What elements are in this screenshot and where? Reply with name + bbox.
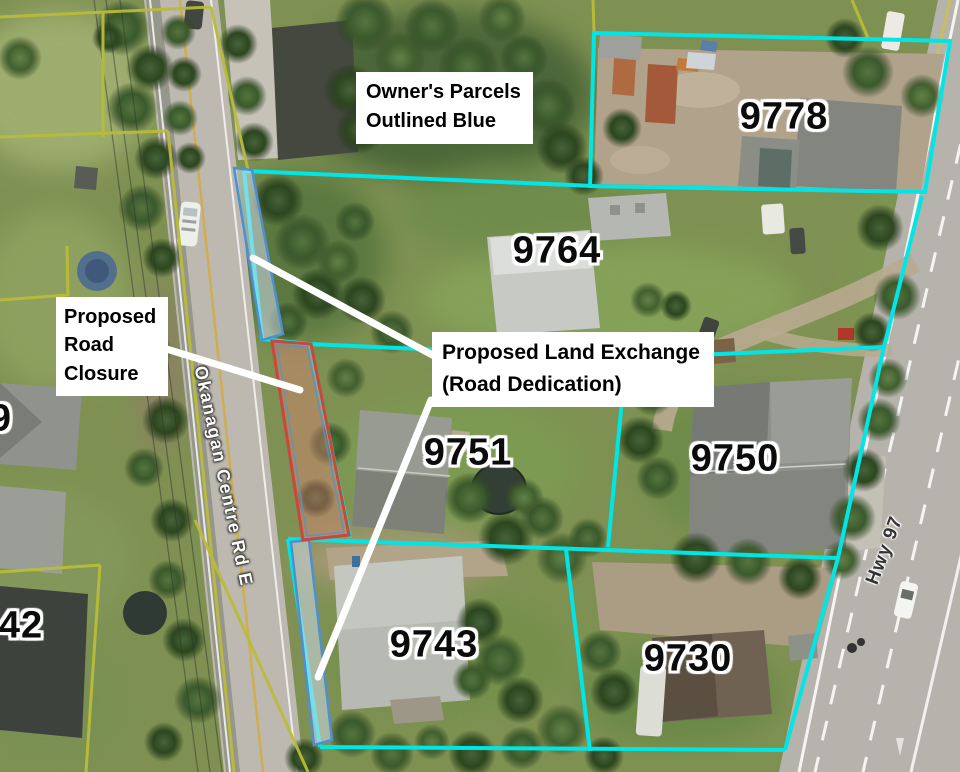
note-land-exchange: Proposed Land Exchange (Road Dedication) bbox=[432, 332, 714, 407]
parcel-label-9730: 9730 bbox=[644, 638, 733, 681]
house-mid-left bbox=[0, 486, 66, 574]
parcel-label-9751: 9751 bbox=[424, 432, 513, 475]
note-closure-line3: Closure bbox=[64, 360, 156, 388]
parcel-label-9764: 9764 bbox=[513, 230, 602, 273]
parcel-label-9750: 9750 bbox=[691, 438, 780, 481]
note-road-closure: Proposed Road Closure bbox=[56, 297, 168, 396]
note-closure-line1: Proposed bbox=[64, 303, 156, 331]
note-exchange-line2: (Road Dedication) bbox=[442, 369, 700, 401]
note-exchange-line1: Proposed Land Exchange bbox=[442, 337, 700, 369]
note-owners-line2: Outlined Blue bbox=[366, 107, 521, 136]
parcel-label-9: 9 bbox=[0, 398, 12, 441]
parcel-label-9778: 9778 bbox=[740, 96, 829, 139]
shed-left bbox=[74, 166, 98, 190]
aerial-map: 9778 9764 9751 9750 9743 9730 42 9 Okana… bbox=[0, 0, 960, 772]
note-owners-line1: Owner's Parcels bbox=[366, 78, 521, 107]
parcel-label-9743: 9743 bbox=[390, 624, 479, 667]
note-owners-parcels: Owner's Parcels Outlined Blue bbox=[356, 72, 533, 144]
note-closure-line2: Road bbox=[64, 331, 156, 359]
parcel-label-42: 42 bbox=[0, 605, 43, 648]
